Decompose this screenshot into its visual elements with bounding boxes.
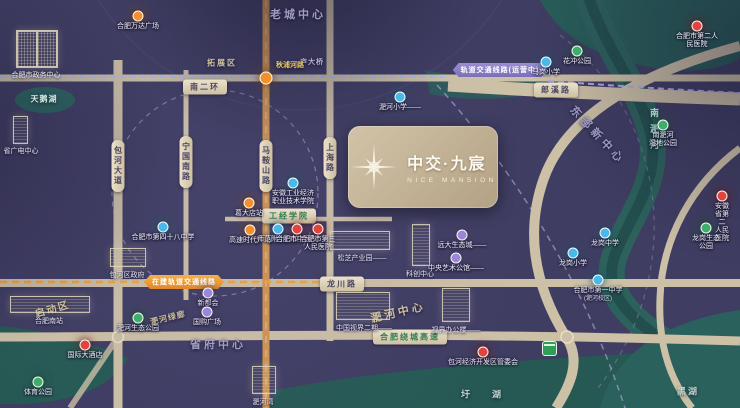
building-label: 包河区政府	[110, 270, 145, 280]
poi-dot-school	[273, 224, 284, 235]
district-label: 天鹅湖	[31, 94, 58, 105]
poi-dot-hospital	[692, 21, 703, 32]
building-sketch	[10, 296, 90, 313]
poi-dot-school	[600, 228, 611, 239]
poi-dot-park	[133, 313, 144, 324]
poi-label: 合肥万达广场	[117, 23, 159, 31]
poi-label: 体育公园	[24, 389, 52, 397]
poi-dot-metro	[260, 72, 273, 85]
poi-dot-park	[572, 46, 583, 57]
poi-dot-commerce	[202, 307, 213, 318]
building-sketch	[16, 30, 58, 68]
poi-dot-school	[288, 178, 299, 189]
metro-line-label: 在建轨道交通线路	[144, 275, 224, 289]
district-label: 东部新中心	[567, 102, 630, 168]
poi-label: 合肥市第一中学(淝河校区)	[574, 287, 623, 303]
poi-label: 龙岗中学	[591, 240, 619, 248]
district-label: 老城中心	[270, 6, 326, 22]
poi-dot-commerce	[451, 253, 462, 264]
poi-label: 远大生态城——	[438, 242, 487, 250]
district-label: 省府中心	[190, 336, 246, 352]
building-sketch	[110, 248, 146, 267]
poi-dot-metro	[244, 198, 255, 209]
poi-dot-hospital	[717, 191, 728, 202]
building-label: 淝河湾	[253, 397, 274, 407]
road-label-vertical: 上海路	[324, 137, 337, 179]
road-label: 龙川路	[320, 277, 364, 292]
poi-label: 龙岗生态公园	[689, 235, 723, 251]
poi-label: 国购广场	[193, 319, 221, 327]
poi-dot-hotel	[80, 340, 91, 351]
road-label: 工经学院	[262, 209, 316, 224]
poi-dot-school	[541, 57, 552, 68]
building-sketch	[412, 224, 430, 266]
poi-dot-mall	[133, 11, 144, 22]
poi-dot-school	[593, 275, 604, 286]
poi-label: 安徽工业经济 职业技术学院	[272, 190, 314, 206]
poi-label: 淝河生态公园	[117, 325, 159, 333]
poi-dot-school	[158, 222, 169, 233]
poi-sublabel: (淝河校区)	[574, 295, 623, 303]
poi-dot-school	[568, 248, 579, 259]
building-sketch	[252, 366, 276, 394]
expressway-badge-icon	[542, 341, 557, 356]
district-label: 拓展区	[207, 58, 237, 69]
poi-dot-park	[33, 377, 44, 388]
project-name-en: NICE MANSION	[407, 177, 497, 184]
poi-label: 合肥市第四十八中学	[132, 234, 195, 242]
building-sketch	[442, 288, 470, 322]
poi-dot-hospital	[313, 224, 324, 235]
road-label-vertical: 马鞍山路	[260, 140, 273, 192]
poi-label: 包河经济开发区管委会	[448, 359, 518, 367]
poi-label: 中央艺术公馆——	[428, 265, 484, 273]
building-label: 中国视界二期——	[336, 323, 392, 333]
road-label: 郎溪路	[534, 83, 578, 98]
building-sketch	[13, 116, 28, 144]
poi-dot-commerce	[457, 230, 468, 241]
project-name-cn: 中交·九宸	[407, 150, 497, 174]
road-label-vertical: 宁国南路	[180, 136, 193, 188]
building-label: 合肥南站	[35, 316, 63, 326]
building-label: 省广电中心	[4, 146, 39, 156]
poi-label: 淝河小学——	[379, 104, 421, 112]
poi-label: 花冲公园	[563, 58, 591, 66]
road-label-vertical: 包河大道	[112, 140, 125, 192]
compass-star-icon	[349, 142, 399, 192]
poi-dot-hospital	[478, 347, 489, 358]
poi-dot-park	[658, 120, 669, 131]
poi-dot-hospital	[292, 224, 303, 235]
poi-label: 国际大酒店	[68, 352, 103, 360]
district-label: 圩湖	[461, 388, 523, 401]
building-label: 视界办公楼——	[432, 325, 481, 335]
building-label: 松芝产业园——	[338, 253, 387, 263]
poi-label: 龙岗小学	[559, 260, 587, 268]
building-sketch	[336, 292, 390, 320]
poi-dot-mall	[245, 225, 256, 236]
poi-label: 合肥市第三 人民医院	[301, 236, 336, 252]
district-label: 秋浦河路	[276, 60, 304, 70]
poi-label: 南淝河 湿地公园	[649, 132, 677, 148]
district-label: 黑湖	[677, 385, 699, 398]
poi-dot-park	[701, 223, 712, 234]
project-logo-card: 中交·九宸 NICE MANSION	[348, 126, 498, 208]
building-label: 合肥市政务中心	[12, 70, 61, 80]
poi-label: 合肥市第二人民医院	[676, 33, 719, 49]
location-map: 老城中心拓展区东部新中心省府中心淝河中心启动区淝河绿廊天鹅湖圩湖黑湖庐大桥秋浦河…	[0, 0, 740, 408]
poi-label: 马岗小学	[532, 69, 560, 77]
poi-label: 葛大店站	[235, 210, 263, 218]
road-label: 南二环	[183, 80, 227, 95]
building-sketch	[330, 231, 390, 250]
poi-dot-commerce	[203, 288, 214, 299]
poi-dot-school	[395, 92, 406, 103]
